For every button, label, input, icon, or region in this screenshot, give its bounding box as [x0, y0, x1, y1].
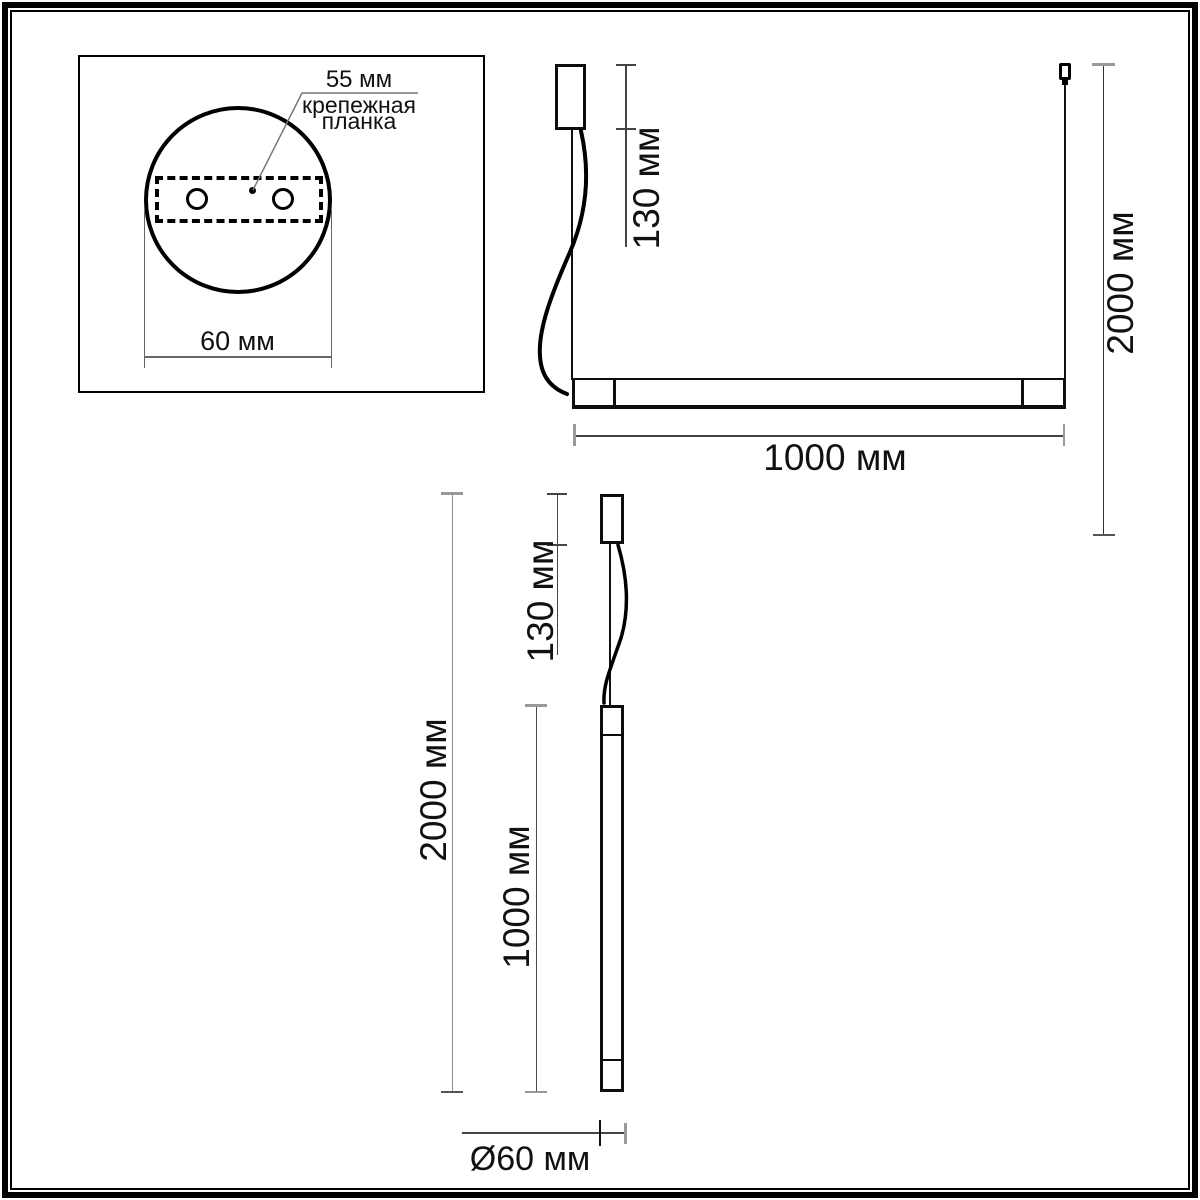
plate-leader-line [253, 93, 418, 190]
power-cord-horizontal-view [540, 131, 586, 394]
curved-lines-layer [0, 0, 1200, 1200]
power-cord-vertical-view [604, 545, 627, 703]
technical-drawing-canvas: 55 мм крепежная планка 60 мм 130 мм 2000… [0, 0, 1200, 1200]
